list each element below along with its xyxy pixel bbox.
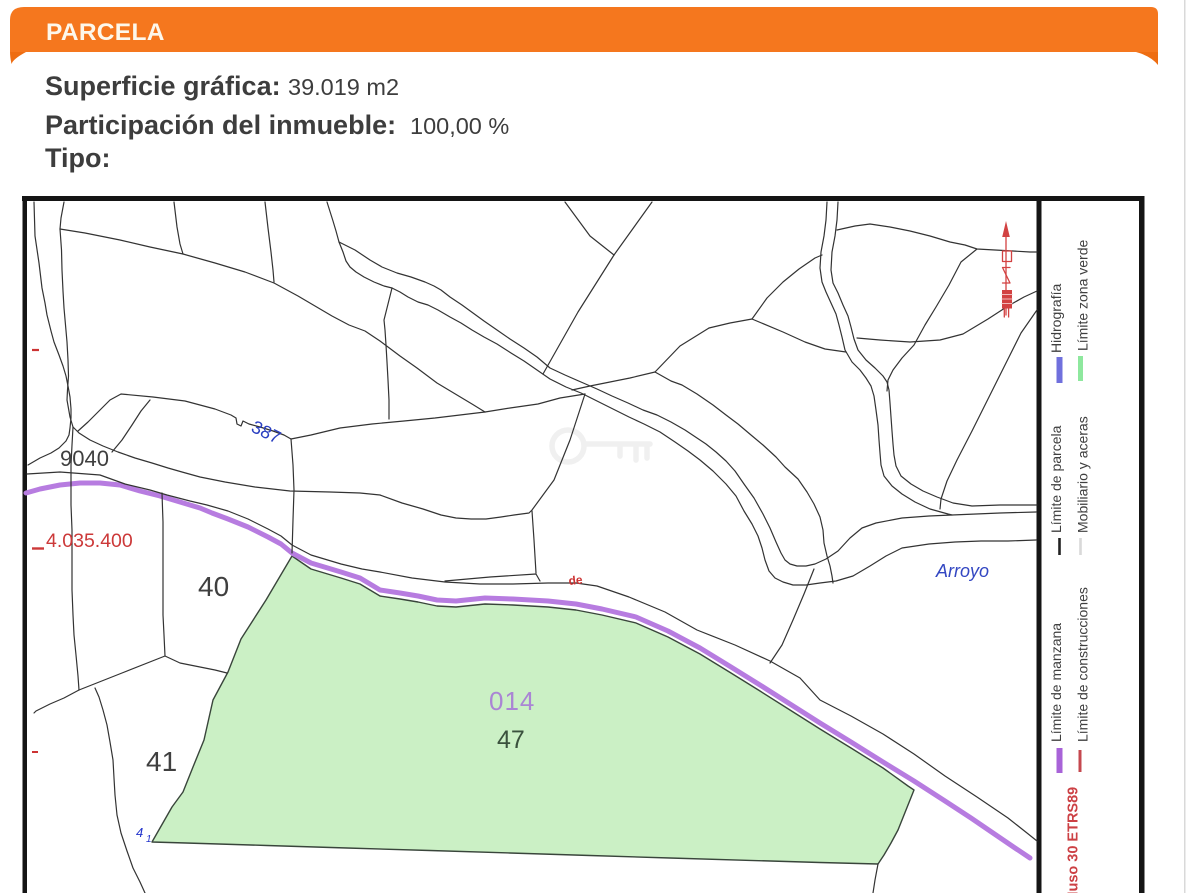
svg-text:Tipo:: Tipo: — [45, 143, 110, 173]
svg-text:4: 4 — [136, 825, 143, 840]
svg-text:40: 40 — [198, 571, 229, 602]
svg-text:Límite de parcela: Límite de parcela — [1048, 425, 1064, 533]
svg-text:Mobiliario y aceras: Mobiliario y aceras — [1075, 416, 1091, 533]
svg-text:de: de — [568, 573, 584, 588]
svg-text:Participación del inmueble:: Participación del inmueble: — [45, 110, 396, 140]
svg-text:47: 47 — [497, 726, 525, 754]
svg-text:9040: 9040 — [60, 446, 109, 471]
svg-text:Huso 30 ETRS89: Huso 30 ETRS89 — [1066, 787, 1082, 893]
svg-text:100,00 %: 100,00 % — [410, 113, 509, 139]
svg-text:39.019 m2: 39.019 m2 — [288, 74, 399, 100]
svg-text:Límite zona verde: Límite zona verde — [1075, 240, 1091, 351]
svg-text:014: 014 — [489, 686, 535, 716]
svg-text:Superficie gráfica:: Superficie gráfica: — [45, 71, 281, 101]
svg-text:Hidrografía: Hidrografía — [1048, 284, 1064, 353]
svg-text:Límite de manzana: Límite de manzana — [1048, 623, 1064, 742]
svg-text:Arroyo: Arroyo — [935, 561, 989, 581]
svg-text:Límite de construcciones: Límite de construcciones — [1075, 587, 1091, 742]
svg-text:PARCELA: PARCELA — [46, 19, 165, 46]
svg-text:4.035.400: 4.035.400 — [46, 530, 133, 552]
svg-text:1: 1 — [146, 834, 152, 845]
svg-text:41: 41 — [146, 746, 177, 777]
